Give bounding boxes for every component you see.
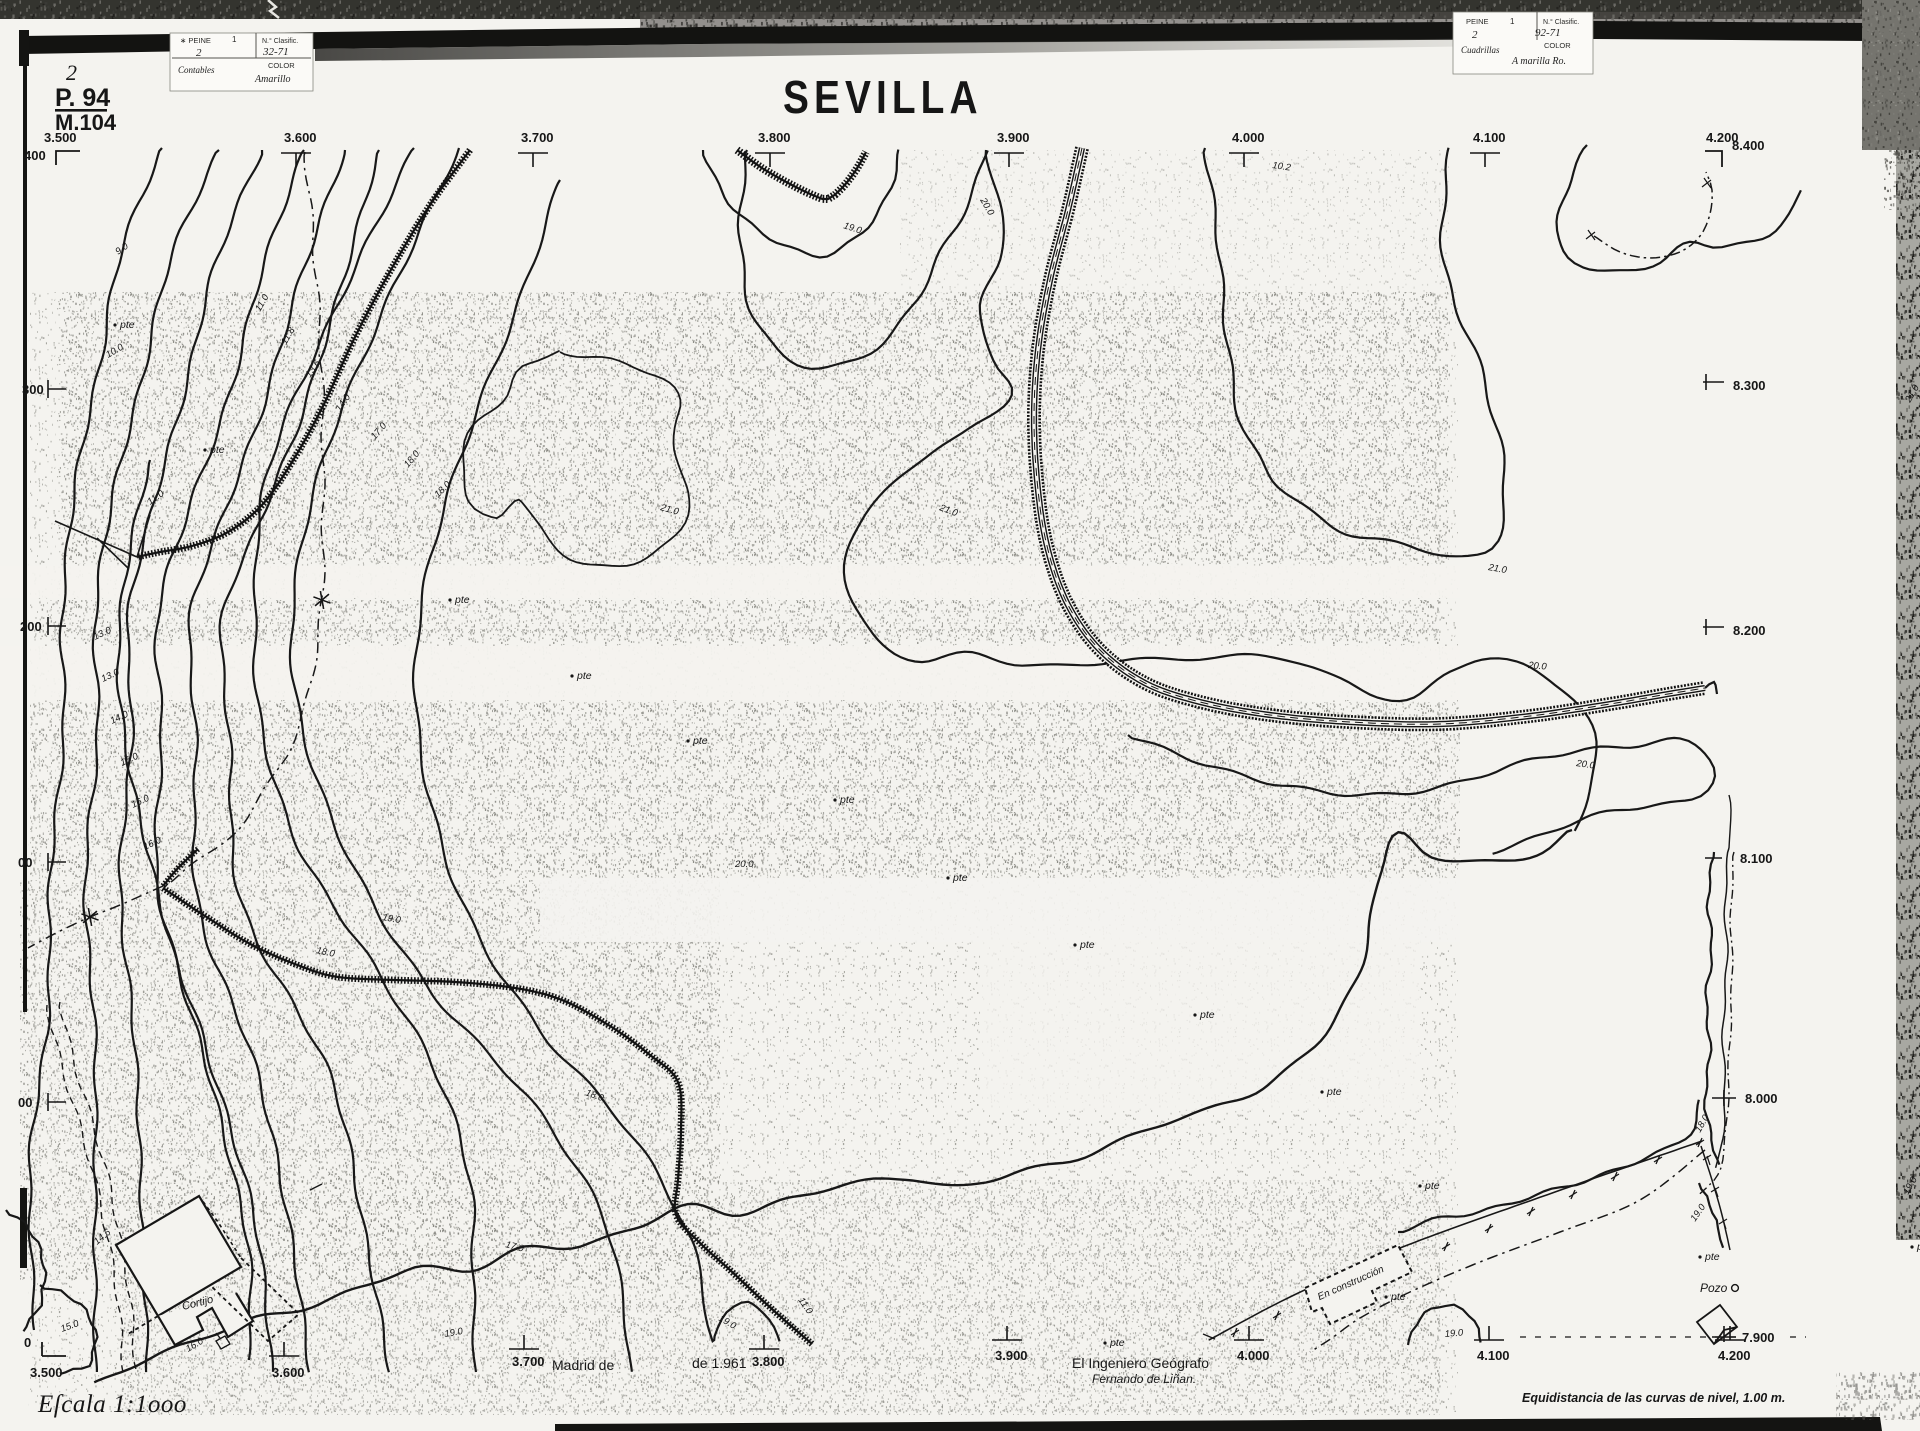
svg-text:3.700: 3.700 <box>521 130 554 145</box>
svg-text:8.100: 8.100 <box>1740 851 1773 866</box>
svg-text:2: 2 <box>1472 29 1478 41</box>
svg-text:3.900: 3.900 <box>997 130 1030 145</box>
svg-text:3.600: 3.600 <box>272 1365 305 1380</box>
svg-text:pte: pte <box>839 794 855 806</box>
svg-text:pte: pte <box>1704 1251 1720 1263</box>
svg-text:pte: pte <box>1109 1337 1125 1349</box>
svg-text:2: 2 <box>196 47 202 59</box>
svg-text:20.0: 20.0 <box>734 859 754 870</box>
svg-text:pte: pte <box>1199 1009 1215 1021</box>
svg-text:Pozo: Pozo <box>1700 1281 1728 1295</box>
svg-text:3.500: 3.500 <box>30 1365 63 1380</box>
svg-text:3.800: 3.800 <box>752 1354 785 1369</box>
svg-text:4.100: 4.100 <box>1473 130 1506 145</box>
svg-text:1: 1 <box>1510 17 1515 26</box>
svg-text:El Ingeniero Geógrafo: El Ingeniero Geógrafo <box>1072 1355 1209 1371</box>
svg-text:pte: pte <box>1326 1086 1342 1098</box>
svg-text:3.600: 3.600 <box>284 130 317 145</box>
svg-text:4.000: 4.000 <box>1232 130 1265 145</box>
svg-text:92-71: 92-71 <box>1535 27 1561 39</box>
svg-text:7.900: 7.900 <box>1742 1330 1775 1345</box>
svg-text:pte: pte <box>1079 939 1095 951</box>
svg-text:3.900: 3.900 <box>995 1348 1028 1363</box>
svg-text:3.500: 3.500 <box>44 130 77 145</box>
svg-text:400: 400 <box>24 148 46 163</box>
svg-text:de 1.961: de 1.961 <box>692 1355 747 1371</box>
svg-text:pte: pte <box>1916 1241 1920 1253</box>
svg-text:4.200: 4.200 <box>1718 1348 1751 1363</box>
svg-text:pte: pte <box>209 444 225 456</box>
svg-text:200: 200 <box>20 619 42 634</box>
svg-text:Fernando de Liñan.: Fernando de Liñan. <box>1092 1372 1196 1386</box>
svg-text:Eſcala 1:1ooo: Eſcala 1:1ooo <box>37 1391 187 1418</box>
svg-text:00: 00 <box>18 1095 32 1110</box>
svg-text:3.800: 3.800 <box>758 130 791 145</box>
svg-text:N.° Clasific.: N.° Clasific. <box>1543 18 1579 26</box>
svg-text:00: 00 <box>18 855 32 870</box>
svg-text:pte: pte <box>1390 1291 1406 1303</box>
svg-text:Equidistancia de las curvas de: Equidistancia de las curvas de nivel, 1.… <box>1522 1391 1785 1405</box>
svg-text:8.400: 8.400 <box>1732 138 1765 153</box>
svg-text:8.200: 8.200 <box>1733 623 1766 638</box>
svg-text:N.° Clasific.: N.° Clasific. <box>262 37 298 45</box>
svg-text:Madrid de: Madrid de <box>552 1357 614 1373</box>
svg-text:pte: pte <box>454 594 470 606</box>
svg-text:pte: pte <box>119 319 135 331</box>
svg-text:1: 1 <box>232 35 237 44</box>
svg-text:20.0: 20.0 <box>1527 660 1548 673</box>
svg-text:SEVILLA: SEVILLA <box>783 72 983 124</box>
svg-text:4.100: 4.100 <box>1477 1348 1510 1363</box>
svg-text:2: 2 <box>66 60 77 85</box>
svg-text:pte: pte <box>576 670 592 682</box>
svg-text:∗ PEINE: ∗ PEINE <box>180 36 211 45</box>
svg-text:Contables: Contables <box>178 65 215 75</box>
svg-text:4.000: 4.000 <box>1237 1348 1270 1363</box>
svg-text:300: 300 <box>22 382 44 397</box>
svg-text:32-71: 32-71 <box>262 46 289 58</box>
svg-text:A marilla Ro.: A marilla Ro. <box>1511 56 1566 67</box>
svg-text:pte: pte <box>1424 1180 1440 1192</box>
svg-text:P. 94: P. 94 <box>55 84 110 112</box>
svg-text:PEINE: PEINE <box>1466 17 1489 26</box>
svg-text:0: 0 <box>24 1335 31 1350</box>
svg-text:8.000: 8.000 <box>1745 1091 1778 1106</box>
svg-text:3.700: 3.700 <box>512 1354 545 1369</box>
svg-text:COLOR: COLOR <box>1544 41 1571 50</box>
svg-text:pte: pte <box>952 872 968 884</box>
svg-text:pte: pte <box>692 735 708 747</box>
svg-text:Amarillo: Amarillo <box>254 74 291 85</box>
svg-text:COLOR: COLOR <box>268 61 295 70</box>
svg-text:Cuadrillas: Cuadrillas <box>1461 45 1500 55</box>
svg-text:19.0: 19.0 <box>1444 1327 1464 1340</box>
svg-text:8.300: 8.300 <box>1733 378 1766 393</box>
